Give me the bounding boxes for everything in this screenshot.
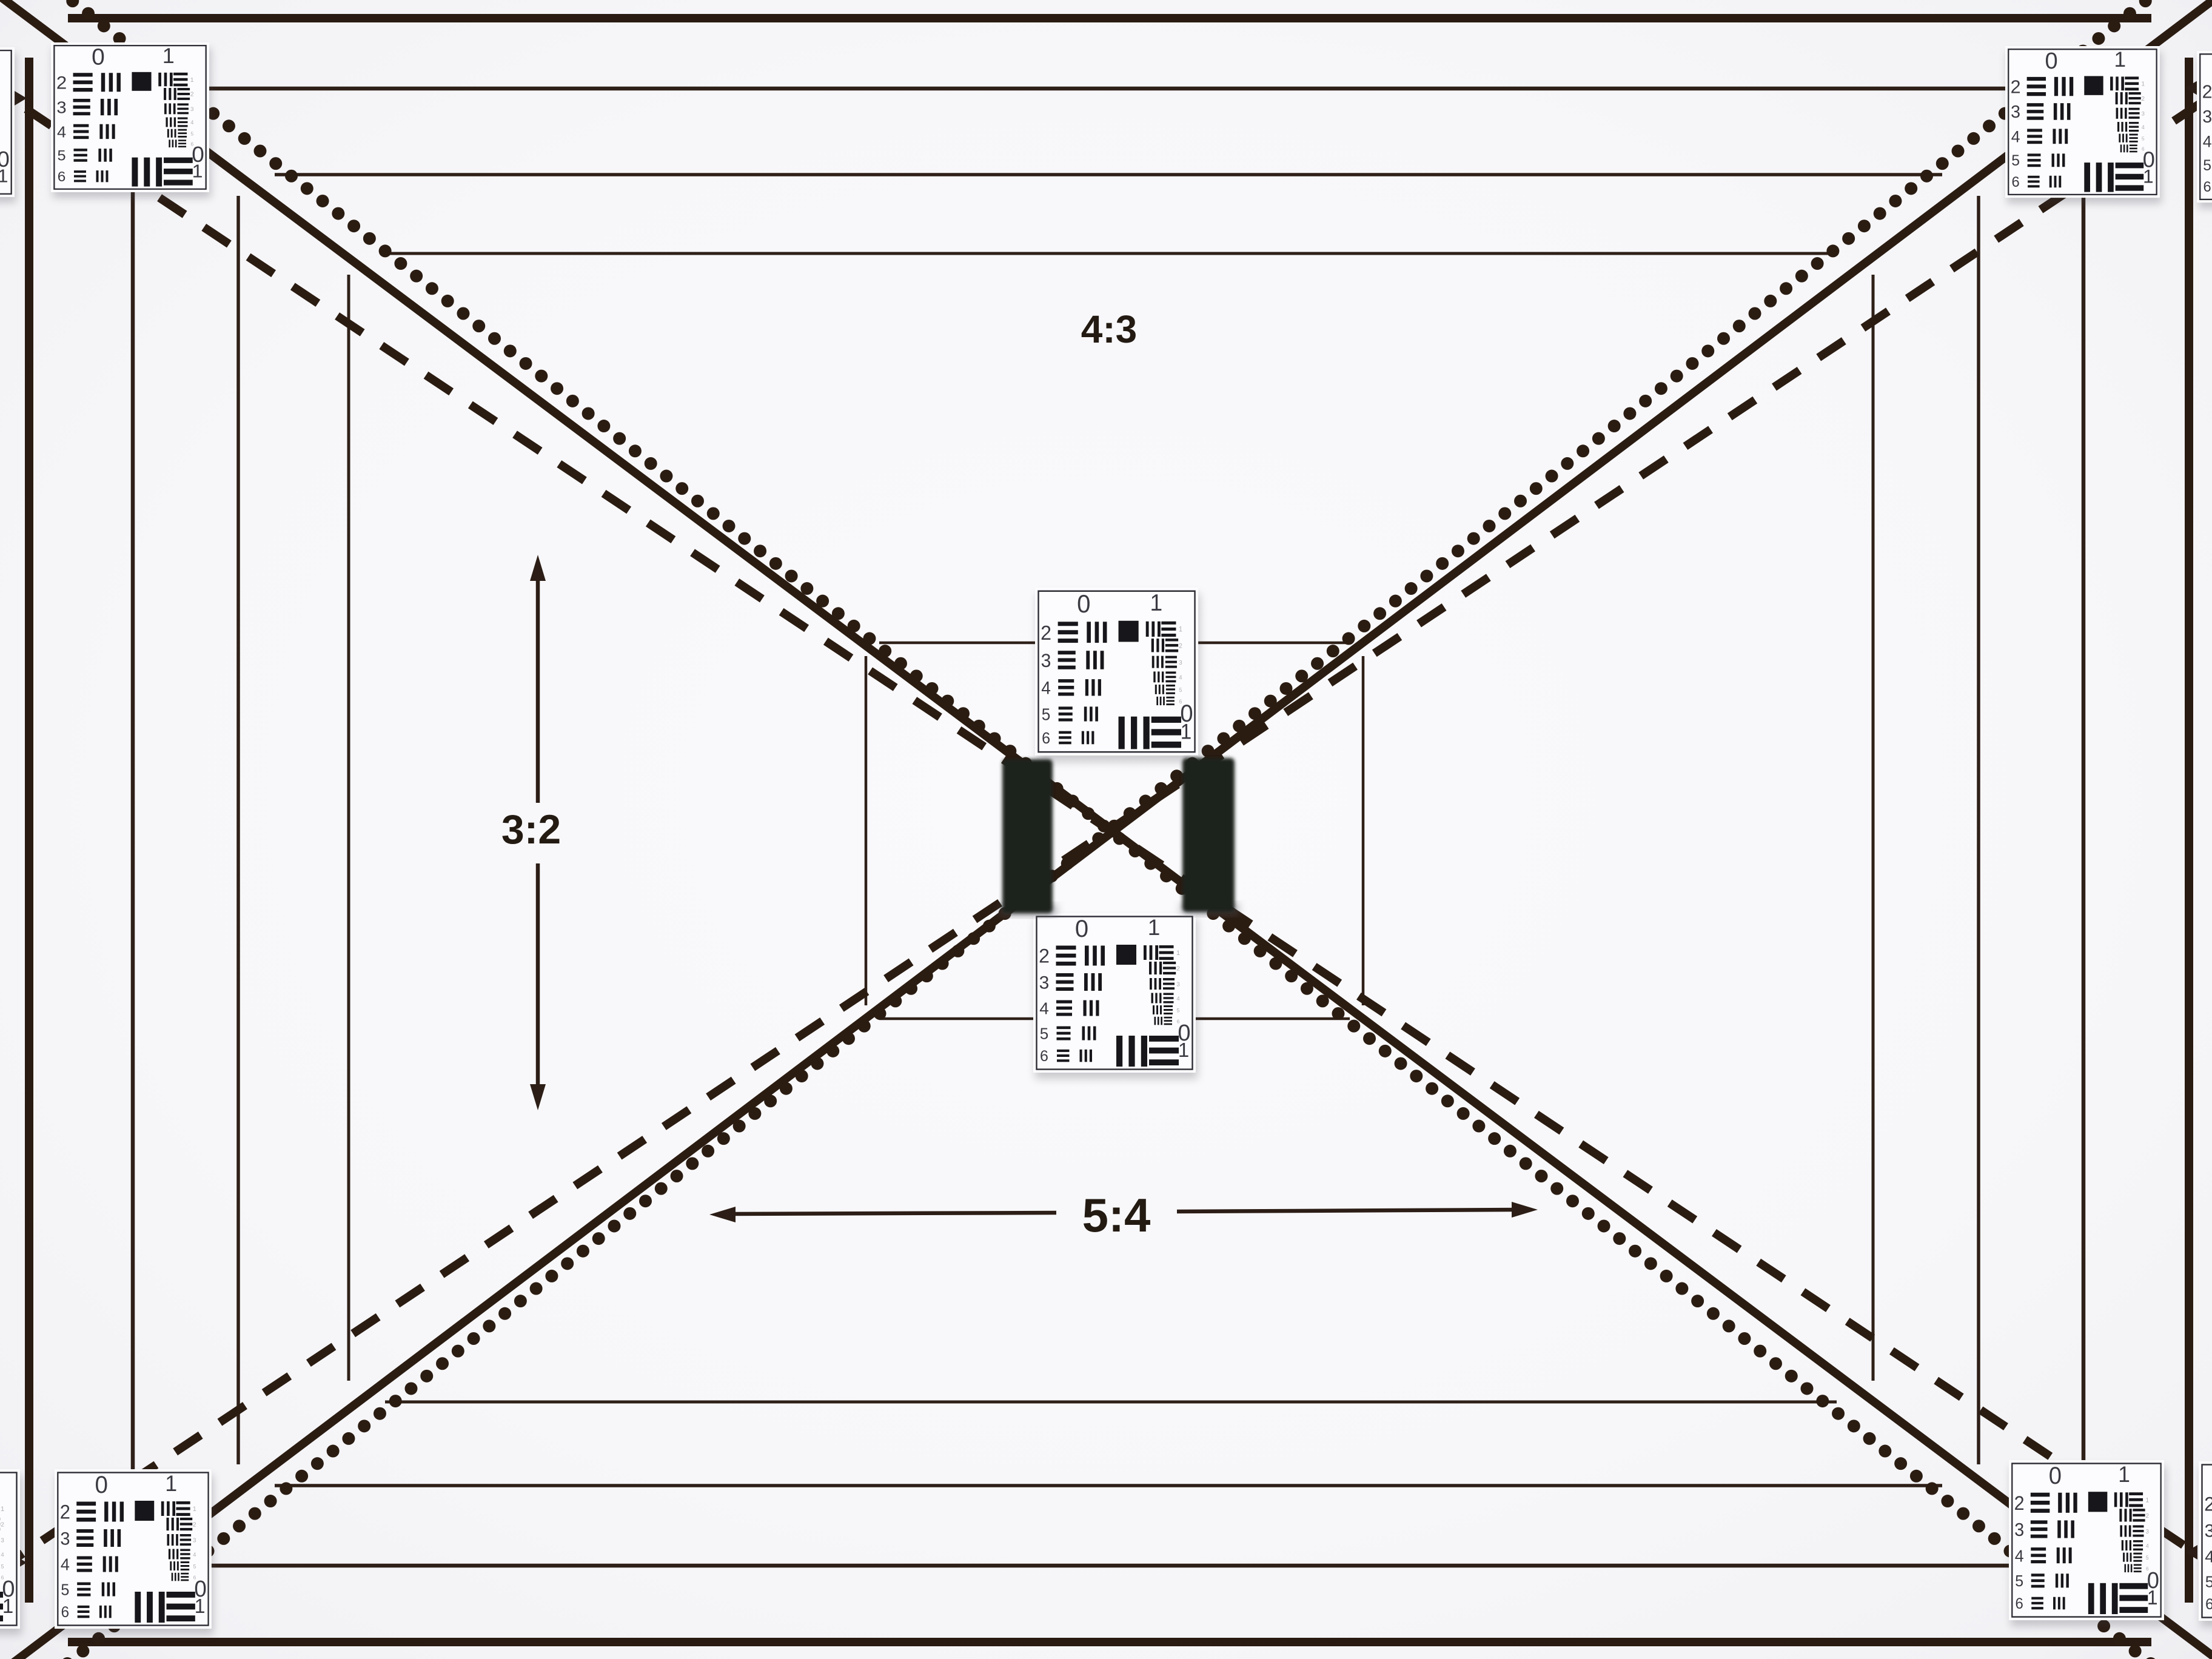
svg-text:5:4: 5:4 bbox=[1082, 1188, 1151, 1242]
svg-text:4:3: 4:3 bbox=[1081, 307, 1138, 351]
svg-text:3:2: 3:2 bbox=[501, 806, 561, 853]
